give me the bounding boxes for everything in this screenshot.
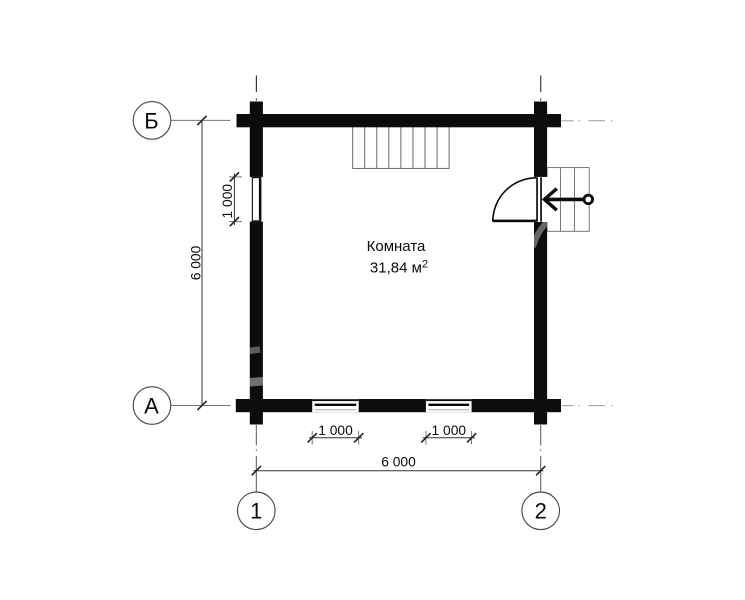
svg-text:Комната: Комната	[367, 238, 426, 255]
svg-text:31,84 м2: 31,84 м2	[370, 258, 428, 276]
svg-text:2: 2	[535, 499, 547, 524]
svg-text:1 000: 1 000	[220, 184, 235, 219]
svg-text:1 000: 1 000	[318, 423, 353, 438]
svg-text:1 000: 1 000	[432, 423, 467, 438]
svg-text:6 000: 6 000	[189, 245, 204, 280]
svg-text:6 000: 6 000	[381, 454, 416, 469]
svg-text:Б: Б	[144, 108, 158, 133]
svg-text:1: 1	[250, 499, 262, 524]
svg-text:А: А	[144, 393, 159, 418]
